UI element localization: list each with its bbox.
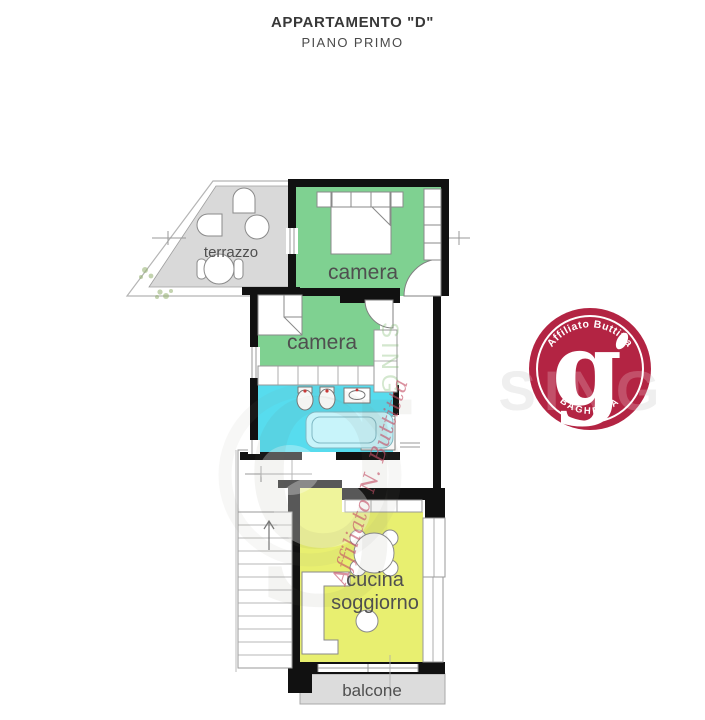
headboard xyxy=(332,192,390,207)
terrace-chair-left xyxy=(197,214,222,236)
terrace-chair-top xyxy=(233,188,255,213)
terrace-chair-b xyxy=(234,259,243,279)
label-terrazzo: terrazzo xyxy=(204,244,258,261)
nightstand-right xyxy=(391,192,403,207)
bay-window-right xyxy=(423,518,445,662)
terrace-seat xyxy=(245,215,269,239)
ghost-logo-text-over: SING xyxy=(499,359,668,422)
nightstand-left xyxy=(317,192,331,207)
wardrobe-camera1 xyxy=(424,189,441,260)
floor-plan: terrazzo camera camera cucina soggiorno … xyxy=(0,0,705,720)
floor-plan-page: APPARTAMENTO "D" PIANO PRIMO xyxy=(0,0,705,720)
label-camera1: camera xyxy=(328,261,398,284)
agency-logo: g Affiliato Buttitta BAGHERIA SING xyxy=(499,308,668,430)
label-balcone: balcone xyxy=(342,681,402,700)
